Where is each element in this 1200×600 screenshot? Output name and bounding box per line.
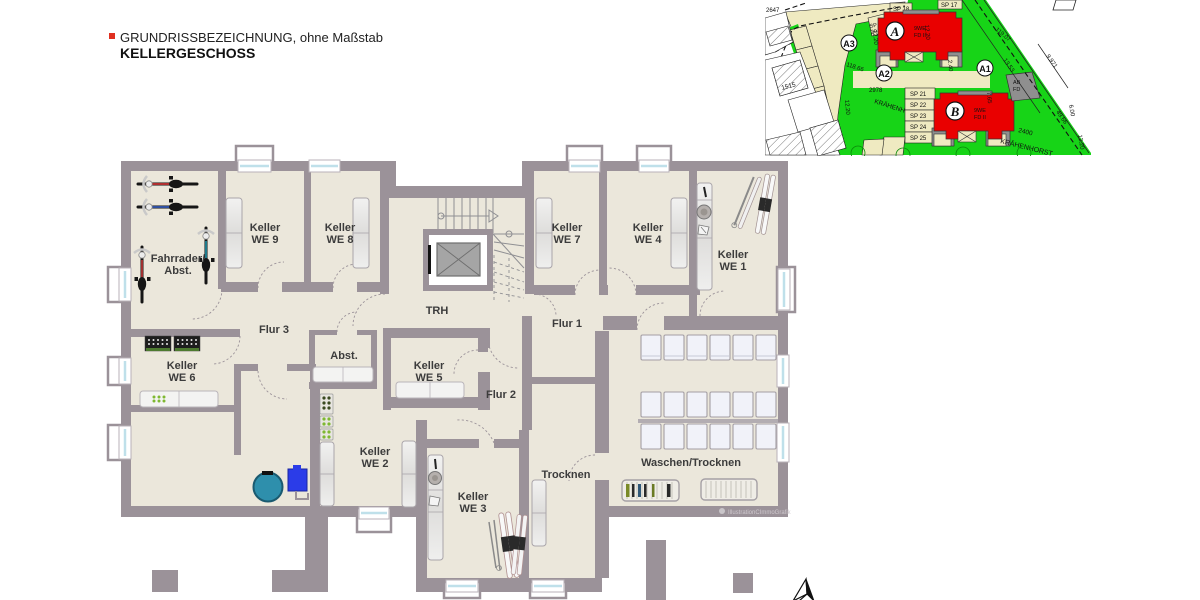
svg-text:FD II: FD II xyxy=(974,115,986,121)
svg-text:A3: A3 xyxy=(843,39,855,49)
svg-text:WE 6: WE 6 xyxy=(169,372,196,384)
svg-text:Keller: Keller xyxy=(325,222,356,234)
svg-text:Flur 3: Flur 3 xyxy=(259,324,289,336)
svg-text:A2: A2 xyxy=(878,69,890,79)
svg-text:WE 2: WE 2 xyxy=(362,458,389,470)
svg-text:SP 24: SP 24 xyxy=(910,125,927,131)
svg-text:WE 7: WE 7 xyxy=(554,234,581,246)
svg-text:Trocknen: Trocknen xyxy=(542,469,591,481)
svg-text:2978: 2978 xyxy=(869,88,883,94)
svg-text:SP 17: SP 17 xyxy=(941,3,958,9)
svg-text:WE 4: WE 4 xyxy=(635,234,663,246)
svg-text:IllustrationCImmoGrafik: IllustrationCImmoGrafik xyxy=(728,510,792,516)
svg-text:Keller: Keller xyxy=(250,222,281,234)
svg-text:Abst.: Abst. xyxy=(164,265,192,277)
svg-text:WE 1: WE 1 xyxy=(720,261,747,273)
svg-text:Keller: Keller xyxy=(414,360,445,372)
svg-text:Flur 2: Flur 2 xyxy=(486,389,516,401)
svg-text:FD: FD xyxy=(1013,87,1020,93)
svg-text:WE 3: WE 3 xyxy=(460,503,487,515)
svg-text:GRUNDRISSBEZEICHNUNG, ohne Maß: GRUNDRISSBEZEICHNUNG, ohne Maßstab xyxy=(120,30,383,45)
svg-text:Keller: Keller xyxy=(167,360,198,372)
svg-text:Keller: Keller xyxy=(458,491,489,503)
svg-text:A1: A1 xyxy=(979,64,991,74)
svg-text:Keller: Keller xyxy=(718,249,749,261)
svg-text:9WE: 9WE xyxy=(974,108,986,114)
svg-text:WE 5: WE 5 xyxy=(416,372,443,384)
svg-text:SP 25: SP 25 xyxy=(910,136,927,142)
svg-text:7.65: 7.65 xyxy=(985,92,992,105)
svg-text:SP 23: SP 23 xyxy=(910,114,927,120)
svg-text:Waschen/Trocknen: Waschen/Trocknen xyxy=(641,457,741,469)
svg-text:SP 22: SP 22 xyxy=(910,103,927,109)
svg-text:KELLERGESCHOSS: KELLERGESCHOSS xyxy=(120,45,255,61)
svg-text:Keller: Keller xyxy=(552,222,583,234)
svg-text:WE 8: WE 8 xyxy=(327,234,354,246)
svg-text:SP 21: SP 21 xyxy=(910,92,927,98)
svg-text:B: B xyxy=(950,104,960,119)
svg-text:Keller: Keller xyxy=(360,446,391,458)
svg-text:TRH: TRH xyxy=(426,305,449,317)
svg-text:WE 9: WE 9 xyxy=(252,234,279,246)
svg-text:2.40: 2.40 xyxy=(946,60,953,73)
svg-text:2647: 2647 xyxy=(766,8,780,14)
svg-text:Flur 1: Flur 1 xyxy=(552,318,582,330)
svg-text:Abst.: Abst. xyxy=(330,350,358,362)
svg-text:Fahrrader/: Fahrrader/ xyxy=(151,253,205,265)
svg-text:A: A xyxy=(890,24,900,39)
svg-text:Keller: Keller xyxy=(633,222,664,234)
